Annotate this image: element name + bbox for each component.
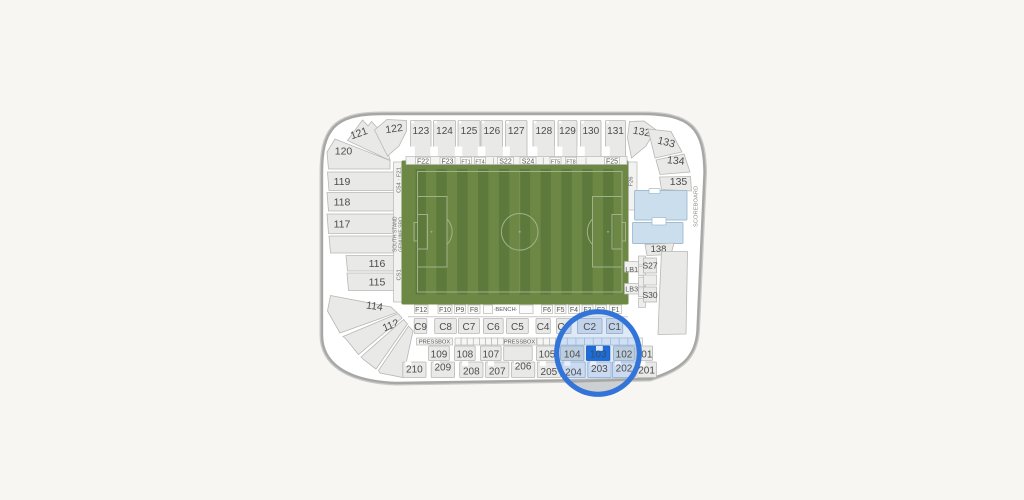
svg-text:C54 · F21: C54 · F21 [396,167,402,193]
svg-text:C8: C8 [439,322,452,333]
svg-text:F5: F5 [556,307,564,314]
svg-text:S22: S22 [499,158,512,165]
svg-text:114: 114 [365,299,383,313]
svg-text:F26: F26 [629,177,635,187]
svg-text:116: 116 [369,258,386,270]
svg-text:119: 119 [334,176,351,188]
svg-text:102: 102 [616,349,633,360]
svg-text:109: 109 [431,349,448,360]
svg-text:C6: C6 [487,322,500,333]
svg-text:108: 108 [457,349,474,360]
svg-text:130: 130 [582,126,599,137]
svg-text:104: 104 [564,349,581,360]
svg-text:115: 115 [369,276,386,288]
svg-text:S24: S24 [522,158,535,165]
svg-text:123: 123 [412,126,429,137]
svg-text:107: 107 [482,349,499,360]
svg-text:F23: F23 [441,158,453,165]
svg-text:F4: F4 [570,307,578,314]
svg-text:207: 207 [489,367,506,378]
svg-text:122: 122 [385,122,404,136]
svg-text:S30: S30 [642,290,657,300]
svg-text:C1: C1 [608,322,621,333]
svg-text:C2: C2 [583,322,596,333]
svg-text:C9: C9 [414,322,427,333]
svg-text:105: 105 [539,349,556,360]
svg-text:LB3: LB3 [625,285,638,294]
svg-text:CS1: CS1 [396,269,402,280]
svg-text:131: 131 [607,126,624,137]
svg-text:LB1: LB1 [625,265,638,274]
svg-text:125: 125 [461,126,478,137]
svg-text:103: 103 [590,349,607,360]
svg-text:210: 210 [406,365,423,376]
svg-text:F25: F25 [606,158,618,165]
svg-text:FT1: FT1 [461,159,470,165]
svg-text:C4: C4 [537,322,550,333]
svg-text:206: 206 [515,362,532,373]
svg-text:S27: S27 [642,260,657,270]
svg-text:FT4: FT4 [475,159,484,165]
svg-text:F10: F10 [439,307,451,314]
svg-text:134: 134 [666,154,685,168]
svg-text:SCOREBOARD: SCOREBOARD [694,186,700,227]
svg-text:120: 120 [335,146,353,158]
svg-text:126: 126 [483,126,500,137]
svg-text:203: 203 [591,364,608,375]
svg-text:F12: F12 [415,307,427,314]
svg-text:·BENCH·: ·BENCH· [493,307,517,313]
svg-text:PRESSBOX: PRESSBOX [504,340,535,346]
svg-text:135: 135 [670,176,688,188]
svg-text:204: 204 [565,368,582,379]
svg-text:117: 117 [334,218,351,230]
svg-text:202: 202 [616,364,633,375]
svg-text:C5: C5 [511,322,524,333]
svg-text:124: 124 [436,126,453,137]
svg-text:127: 127 [508,126,525,137]
svg-text:P9: P9 [456,307,465,314]
svg-text:128: 128 [535,126,552,137]
svg-text:201: 201 [638,366,655,377]
svg-text:208: 208 [463,367,480,378]
svg-text:F8: F8 [470,307,478,314]
svg-text:129: 129 [559,126,576,137]
svg-text:PRESSBOX: PRESSBOX [419,340,450,346]
svg-text:FT5: FT5 [551,159,560,165]
svg-text:F22: F22 [417,158,429,165]
svg-text:F6: F6 [543,307,551,314]
svg-text:C7: C7 [463,322,476,333]
svg-text:FT8: FT8 [566,159,575,165]
svg-text:118: 118 [334,196,351,208]
svg-text:209: 209 [434,363,451,374]
svg-text:205: 205 [541,367,558,378]
